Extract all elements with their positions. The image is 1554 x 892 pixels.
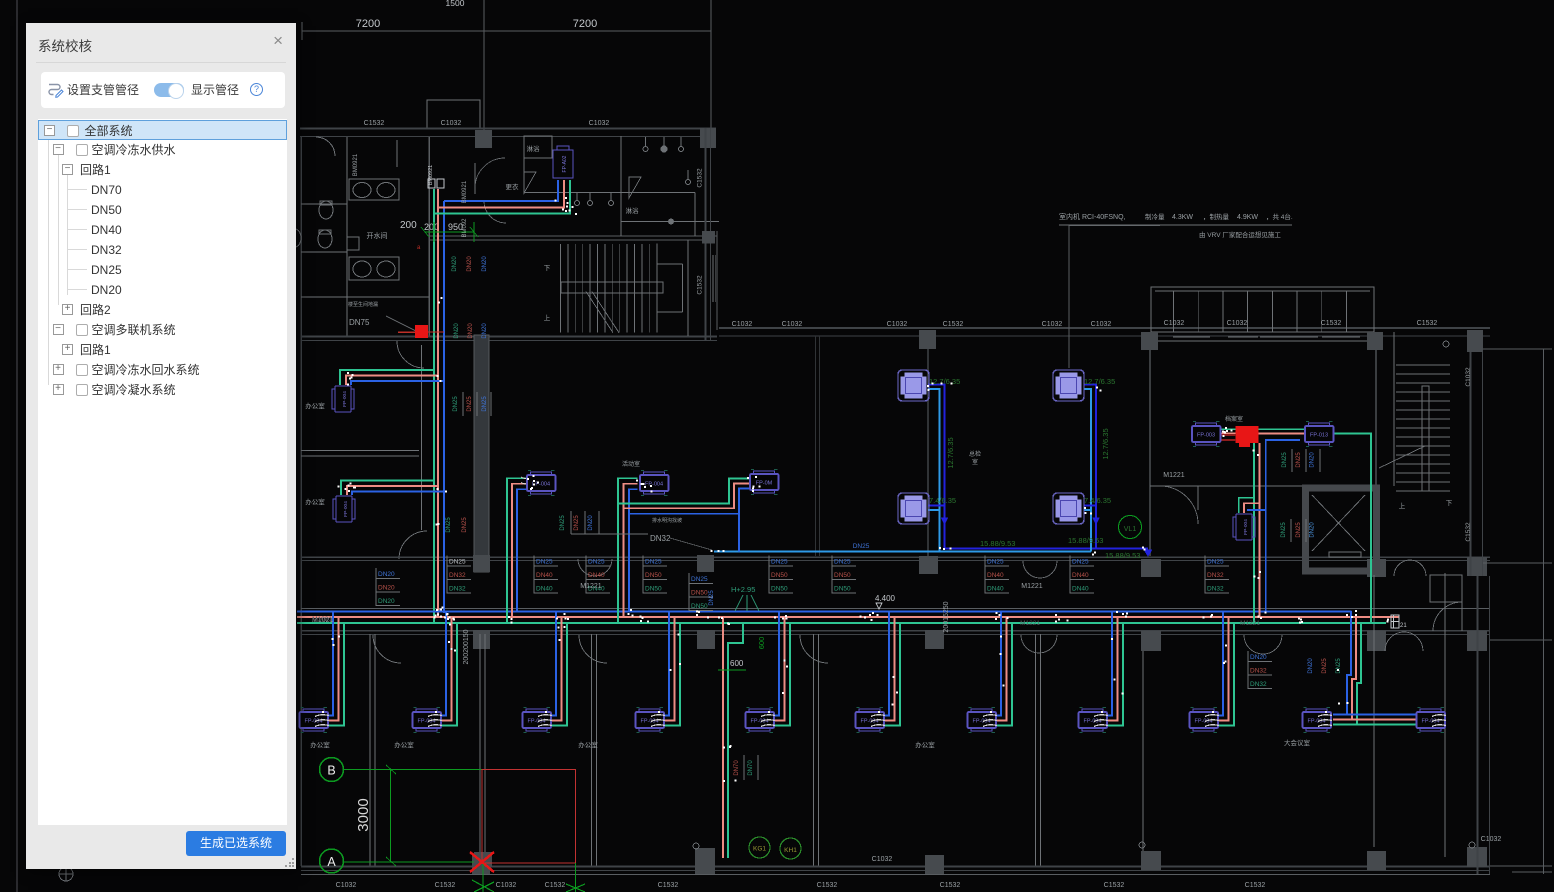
svg-text:DN20: DN20 xyxy=(468,323,474,339)
svg-text:DN25: DN25 xyxy=(453,396,459,412)
svg-text:淋浴: 淋浴 xyxy=(527,144,541,153)
svg-text:DN50: DN50 xyxy=(691,603,708,610)
svg-text:950: 950 xyxy=(448,222,463,232)
svg-text:DN40: DN40 xyxy=(536,572,553,579)
svg-text:C1032: C1032 xyxy=(589,120,610,127)
svg-text:4.3KW: 4.3KW xyxy=(1172,214,1193,221)
svg-text:办公室: 办公室 xyxy=(394,740,414,749)
svg-text:DN75: DN75 xyxy=(349,318,370,327)
svg-text:DN32: DN32 xyxy=(1207,572,1224,579)
svg-text:A: A xyxy=(327,855,336,869)
svg-text:C1532: C1532 xyxy=(1465,522,1472,542)
svg-text:上: 上 xyxy=(1399,501,1406,510)
svg-text:DN25: DN25 xyxy=(1281,522,1287,538)
svg-text:DN50: DN50 xyxy=(834,586,851,593)
svg-text:200: 200 xyxy=(400,220,417,231)
svg-text:C1032: C1032 xyxy=(441,120,462,127)
svg-text:FP-003: FP-003 xyxy=(1197,433,1215,439)
svg-text:DN25: DN25 xyxy=(1296,522,1302,538)
svg-text:DN32: DN32 xyxy=(1250,668,1267,675)
svg-text:室: 室 xyxy=(972,458,978,466)
svg-text:15.88/9.53: 15.88/9.53 xyxy=(1068,536,1103,545)
svg-text:C1532: C1532 xyxy=(658,882,679,889)
svg-text:C1532: C1532 xyxy=(545,882,566,889)
svg-text:DN25: DN25 xyxy=(1322,658,1328,674)
svg-text:M1221: M1221 xyxy=(1020,620,1040,627)
svg-text:更衣: 更衣 xyxy=(506,182,520,191)
svg-text:DN20: DN20 xyxy=(467,256,473,272)
svg-text:DN40: DN40 xyxy=(1072,586,1089,593)
svg-text:DN20: DN20 xyxy=(452,256,458,272)
svg-text:C1532: C1532 xyxy=(697,275,704,295)
svg-text:DN25: DN25 xyxy=(645,559,662,566)
svg-text:DN25: DN25 xyxy=(446,517,452,533)
svg-text:12.7/6.35: 12.7/6.35 xyxy=(929,377,960,386)
svg-text:DN20: DN20 xyxy=(1308,658,1314,674)
svg-text:C1532: C1532 xyxy=(940,882,961,889)
svg-text:DN25: DN25 xyxy=(588,559,605,566)
svg-text:下: 下 xyxy=(1446,499,1453,507)
svg-text:VL1: VL1 xyxy=(1124,526,1137,533)
svg-text:FP-004: FP-004 xyxy=(1243,519,1249,535)
svg-text:3000: 3000 xyxy=(355,798,372,831)
svg-text:DN50: DN50 xyxy=(771,586,788,593)
svg-text:DN32: DN32 xyxy=(449,572,466,579)
svg-text:C1532: C1532 xyxy=(364,120,385,127)
svg-text:FP-004: FP-004 xyxy=(645,482,663,488)
svg-text:大会议室: 大会议室 xyxy=(1284,738,1311,747)
svg-text:B: B xyxy=(327,764,335,778)
svg-text:M1221: M1221 xyxy=(580,583,602,590)
svg-text:DN25: DN25 xyxy=(853,543,870,550)
svg-text:DN20: DN20 xyxy=(588,515,594,531)
svg-text:FP-0M: FP-0M xyxy=(756,481,773,487)
svg-text:BM0921: BM0921 xyxy=(462,180,468,203)
svg-text:DN20: DN20 xyxy=(454,323,460,339)
svg-text:DN70: DN70 xyxy=(748,760,754,776)
svg-text:DN25: DN25 xyxy=(771,559,788,566)
svg-text:DN70: DN70 xyxy=(734,760,740,776)
svg-text:15.88/9.53: 15.88/9.53 xyxy=(980,539,1015,548)
svg-text:7.4/6.35: 7.4/6.35 xyxy=(1084,496,1111,505)
svg-text:FP-004: FP-004 xyxy=(343,501,349,517)
svg-text:DN32: DN32 xyxy=(650,534,671,543)
svg-text:办公室: 办公室 xyxy=(305,497,325,506)
svg-text:由 VRV 厂家配合运想见施工: 由 VRV 厂家配合运想见施工 xyxy=(1199,230,1281,239)
svg-text:，共 4台.: ，共 4台. xyxy=(1266,212,1293,221)
svg-text:BM0921: BM0921 xyxy=(353,153,359,176)
svg-text:DN50: DN50 xyxy=(645,572,662,579)
svg-text:FP-004: FP-004 xyxy=(342,391,348,407)
svg-text:楼至生间地漏: 楼至生间地漏 xyxy=(348,301,378,308)
svg-text:C1532: C1532 xyxy=(1104,882,1125,889)
svg-text:下: 下 xyxy=(544,264,551,272)
svg-text:12.7/6.35: 12.7/6.35 xyxy=(946,437,955,468)
svg-text:制冷量: 制冷量 xyxy=(1145,212,1165,221)
svg-text:DN25: DN25 xyxy=(462,517,468,533)
svg-text:C1032: C1032 xyxy=(887,321,908,328)
svg-text:BM0921: BM0921 xyxy=(428,165,434,186)
svg-text:DN40: DN40 xyxy=(588,572,605,579)
svg-text:20015250: 20015250 xyxy=(943,601,950,632)
svg-text:C1032: C1032 xyxy=(1481,836,1502,843)
svg-text:开水间: 开水间 xyxy=(367,231,388,240)
svg-text:排水明沟找坡: 排水明沟找坡 xyxy=(652,517,682,524)
svg-text:C1532: C1532 xyxy=(817,882,838,889)
svg-text:C1032: C1032 xyxy=(1227,320,1248,327)
svg-text:室内机 RCI-40FSNQ,: 室内机 RCI-40FSNQ, xyxy=(1059,212,1126,221)
svg-text:C1032: C1032 xyxy=(1091,321,1112,328)
svg-text:M1221: M1221 xyxy=(1240,620,1260,627)
svg-text:200: 200 xyxy=(424,222,439,232)
svg-text:C1032: C1032 xyxy=(1164,320,1185,327)
svg-text:DN20: DN20 xyxy=(482,323,488,339)
svg-text:档案室: 档案室 xyxy=(1225,415,1243,423)
svg-text:办公室: 办公室 xyxy=(310,740,330,749)
svg-text:C1532: C1532 xyxy=(1245,882,1266,889)
svg-text:DN25: DN25 xyxy=(834,559,851,566)
svg-text:DN50: DN50 xyxy=(645,586,662,593)
svg-text:4.9KW: 4.9KW xyxy=(1237,214,1258,221)
svg-text:淋浴: 淋浴 xyxy=(626,206,640,215)
svg-text:C1532: C1532 xyxy=(943,321,964,328)
svg-text:DN25: DN25 xyxy=(1296,452,1302,468)
svg-text:600: 600 xyxy=(757,637,766,650)
svg-text:DN50: DN50 xyxy=(834,572,851,579)
svg-text:总检: 总检 xyxy=(969,450,981,458)
svg-text:M1221: M1221 xyxy=(1163,472,1185,479)
svg-text:上: 上 xyxy=(544,313,551,322)
svg-text:DN40: DN40 xyxy=(1072,572,1089,579)
svg-text:7200: 7200 xyxy=(573,18,597,30)
svg-text:，制热量: ，制热量 xyxy=(1203,212,1230,221)
svg-text:DN20: DN20 xyxy=(1310,522,1316,538)
svg-text:DN20: DN20 xyxy=(1250,654,1267,661)
svg-text:C1532: C1532 xyxy=(1321,320,1342,327)
svg-text:DN25: DN25 xyxy=(987,559,1004,566)
svg-text:DN25: DN25 xyxy=(536,559,553,566)
svg-text:7.4/6.35: 7.4/6.35 xyxy=(929,496,956,505)
svg-text:FP-013: FP-013 xyxy=(1310,433,1328,439)
svg-text:200200150: 200200150 xyxy=(463,629,470,664)
svg-text:12.7/6.35: 12.7/6.35 xyxy=(1101,428,1110,459)
svg-text:DN25: DN25 xyxy=(482,396,488,412)
svg-text:DN40: DN40 xyxy=(536,586,553,593)
svg-text:DN25: DN25 xyxy=(1207,559,1224,566)
svg-text:DN25: DN25 xyxy=(1072,559,1089,566)
svg-text:DN20: DN20 xyxy=(1310,452,1316,468)
svg-text:C1032: C1032 xyxy=(872,856,893,863)
svg-text:DN20: DN20 xyxy=(378,585,395,592)
svg-text:DN50: DN50 xyxy=(771,572,788,579)
svg-text:1500: 1500 xyxy=(446,0,465,8)
svg-text:C1032: C1032 xyxy=(732,321,753,328)
svg-text:DN20: DN20 xyxy=(378,598,395,605)
svg-text:C1032: C1032 xyxy=(1042,321,1063,328)
svg-text:DN32: DN32 xyxy=(1250,681,1267,688)
svg-text:DN25: DN25 xyxy=(1336,658,1342,674)
svg-text:办公室: 办公室 xyxy=(305,401,325,410)
svg-text:7200: 7200 xyxy=(356,18,380,30)
svg-text:C1532: C1532 xyxy=(435,882,456,889)
svg-text:C1032: C1032 xyxy=(782,321,803,328)
svg-text:C1032: C1032 xyxy=(336,882,357,889)
svg-text:C1532: C1532 xyxy=(1417,320,1438,327)
svg-text:DN32: DN32 xyxy=(1207,586,1224,593)
svg-text:15.88/9.53: 15.88/9.53 xyxy=(1105,551,1140,560)
svg-text:12.7/6.35: 12.7/6.35 xyxy=(1084,377,1115,386)
svg-text:DN32: DN32 xyxy=(449,586,466,593)
svg-text:DN25: DN25 xyxy=(560,515,566,531)
svg-text:4.400: 4.400 xyxy=(875,594,896,603)
svg-text:KH1: KH1 xyxy=(784,847,797,854)
svg-text:FP-A02: FP-A02 xyxy=(562,155,568,172)
svg-text:DN25: DN25 xyxy=(1282,452,1288,468)
svg-text:KG1: KG1 xyxy=(753,846,766,853)
svg-text:活动室: 活动室 xyxy=(622,460,640,468)
svg-text:21: 21 xyxy=(1400,623,1407,629)
svg-text:DN25: DN25 xyxy=(467,396,473,412)
svg-text:C1032: C1032 xyxy=(496,882,517,889)
svg-text:DN40: DN40 xyxy=(987,572,1004,579)
svg-text:DN20: DN20 xyxy=(378,571,395,578)
svg-text:DN25: DN25 xyxy=(691,576,708,583)
svg-text:DN20: DN20 xyxy=(482,256,488,272)
svg-text:DN25: DN25 xyxy=(709,590,715,606)
svg-text:DN25: DN25 xyxy=(574,515,580,531)
svg-text:M1021: M1021 xyxy=(312,616,332,623)
svg-text:DN50: DN50 xyxy=(691,590,708,597)
svg-text:办公室: 办公室 xyxy=(915,740,935,749)
svg-text:办公室: 办公室 xyxy=(578,740,598,749)
svg-text:600: 600 xyxy=(730,659,744,668)
svg-text:M1221: M1221 xyxy=(1021,583,1043,590)
svg-text:DN25: DN25 xyxy=(449,559,466,566)
svg-text:C1032: C1032 xyxy=(1465,367,1472,387)
svg-text:H+2.95: H+2.95 xyxy=(731,585,755,594)
svg-text:C1532: C1532 xyxy=(697,168,704,188)
svg-text:DN40: DN40 xyxy=(987,586,1004,593)
svg-text:BM092: BM092 xyxy=(462,218,468,238)
